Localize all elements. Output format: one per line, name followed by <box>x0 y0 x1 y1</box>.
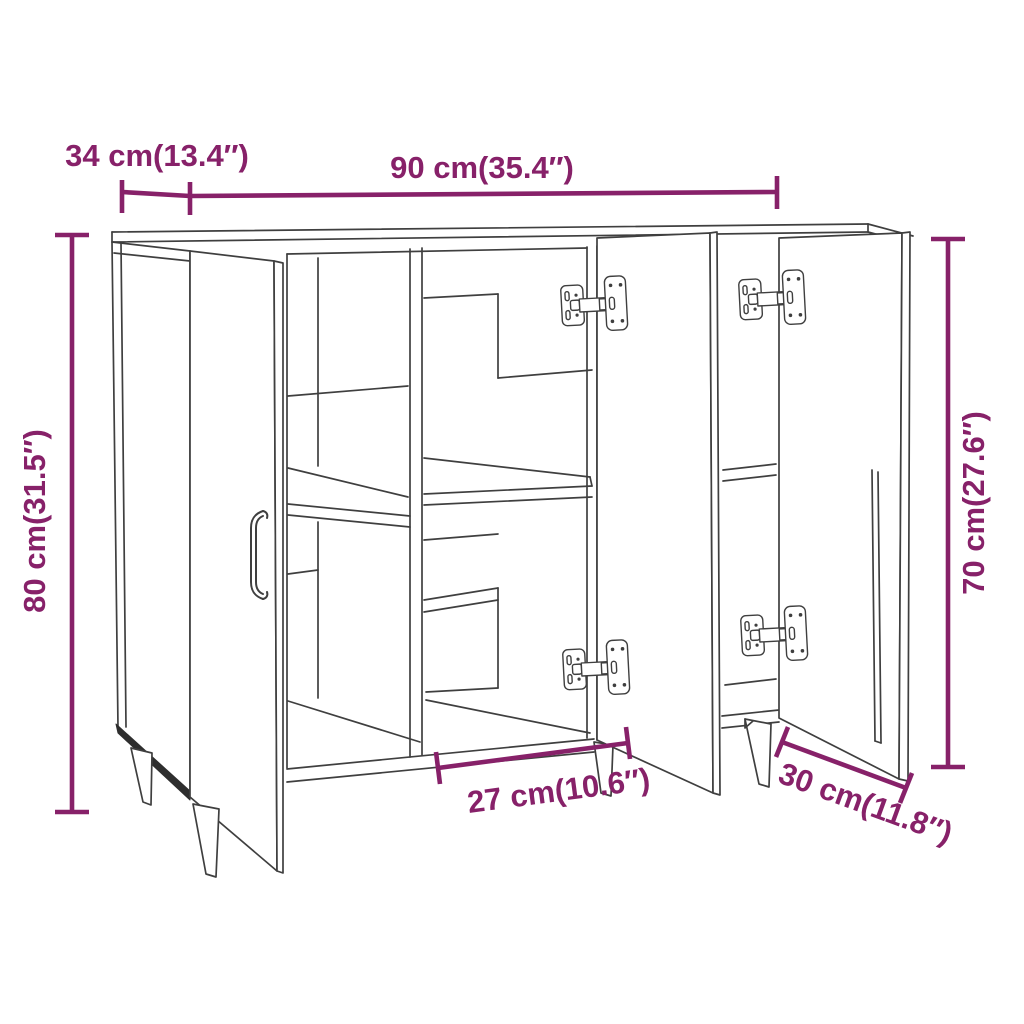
dim-label-inner-width: 27 cm(10.6″) <box>465 761 652 820</box>
cabinet-leg-back-right <box>745 719 771 787</box>
dim-line-depth <box>122 180 190 215</box>
interior-center-divider <box>410 248 422 757</box>
dim-label-width: 90 cm(35.4″) <box>390 150 574 185</box>
dim-label-height: 80 cm(31.5″) <box>17 429 52 613</box>
interior-left-compartment <box>287 254 420 768</box>
diagram-page: 34 cm(13.4″) 90 cm(35.4″) 80 cm(31.5″) 7… <box>0 0 1024 1024</box>
sideboard-dimension-diagram: 34 cm(13.4″) 90 cm(35.4″) 80 cm(31.5″) 7… <box>0 0 1024 1024</box>
dim-label-depth: 34 cm(13.4″) <box>65 138 249 173</box>
left-side-panel <box>112 242 190 800</box>
dim-line-height <box>55 235 89 812</box>
left-door-open <box>190 251 283 873</box>
cabinet-leg-front-center <box>193 804 219 877</box>
dim-label-inner-depth: 30 cm(11.8″) <box>774 756 957 851</box>
cabinet-leg-front-left <box>131 748 152 805</box>
interior-far-right-compartment <box>722 464 779 728</box>
dim-label-door-height: 70 cm(27.6″) <box>956 411 991 595</box>
